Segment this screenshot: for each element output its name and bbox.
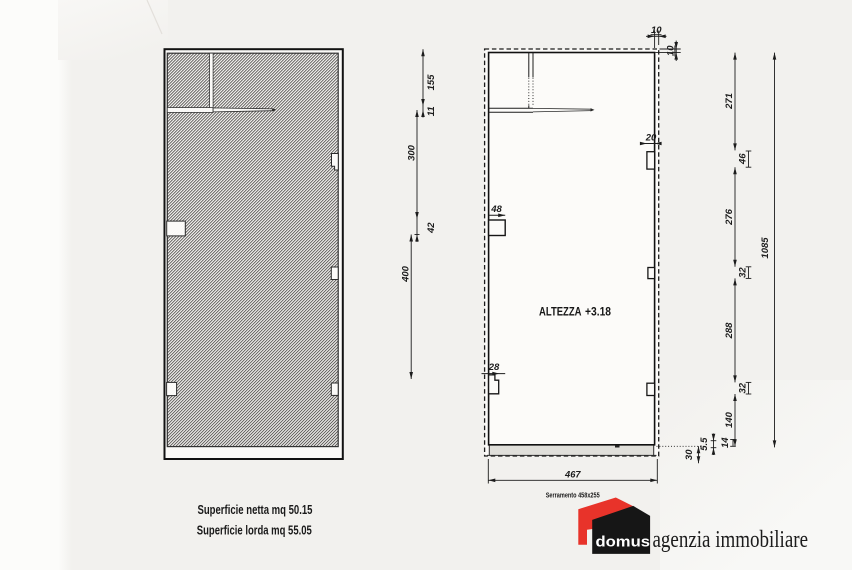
- svg-text:10: 10: [651, 25, 662, 36]
- svg-text:400: 400: [400, 265, 411, 283]
- svg-text:+3.18: +3.18: [585, 307, 612, 319]
- svg-text:domus: domus: [596, 534, 651, 551]
- svg-text:agenzia immobiliare: agenzia immobiliare: [653, 526, 809, 553]
- svg-text:20: 20: [645, 132, 657, 143]
- svg-text:467: 467: [564, 469, 581, 480]
- svg-text:276: 276: [724, 208, 735, 226]
- svg-text:14: 14: [720, 437, 731, 448]
- svg-text:271: 271: [724, 93, 735, 110]
- svg-text:46: 46: [738, 153, 749, 165]
- svg-text:30: 30: [684, 449, 695, 460]
- svg-text:11: 11: [426, 106, 437, 116]
- svg-text:5.5: 5.5: [699, 437, 710, 451]
- svg-text:42: 42: [426, 222, 437, 234]
- svg-text:48: 48: [490, 204, 502, 215]
- svg-text:Superficie lorda mq 55.05: Superficie lorda mq 55.05: [197, 524, 312, 538]
- svg-text:1085: 1085: [760, 237, 771, 259]
- svg-text:32: 32: [738, 382, 749, 393]
- svg-text:140: 140: [724, 411, 735, 428]
- svg-text:28: 28: [488, 362, 500, 373]
- svg-text:288: 288: [724, 322, 735, 340]
- svg-text:300: 300: [406, 144, 417, 161]
- svg-text:10: 10: [665, 45, 676, 56]
- svg-text:155: 155: [426, 74, 437, 91]
- svg-text:Superficie netta mq 50.15: Superficie netta mq 50.15: [198, 503, 313, 517]
- svg-text:32: 32: [738, 267, 749, 278]
- svg-text:Serramento 458x255: Serramento 458x255: [546, 491, 600, 500]
- svg-text:ALTEZZA: ALTEZZA: [539, 307, 582, 319]
